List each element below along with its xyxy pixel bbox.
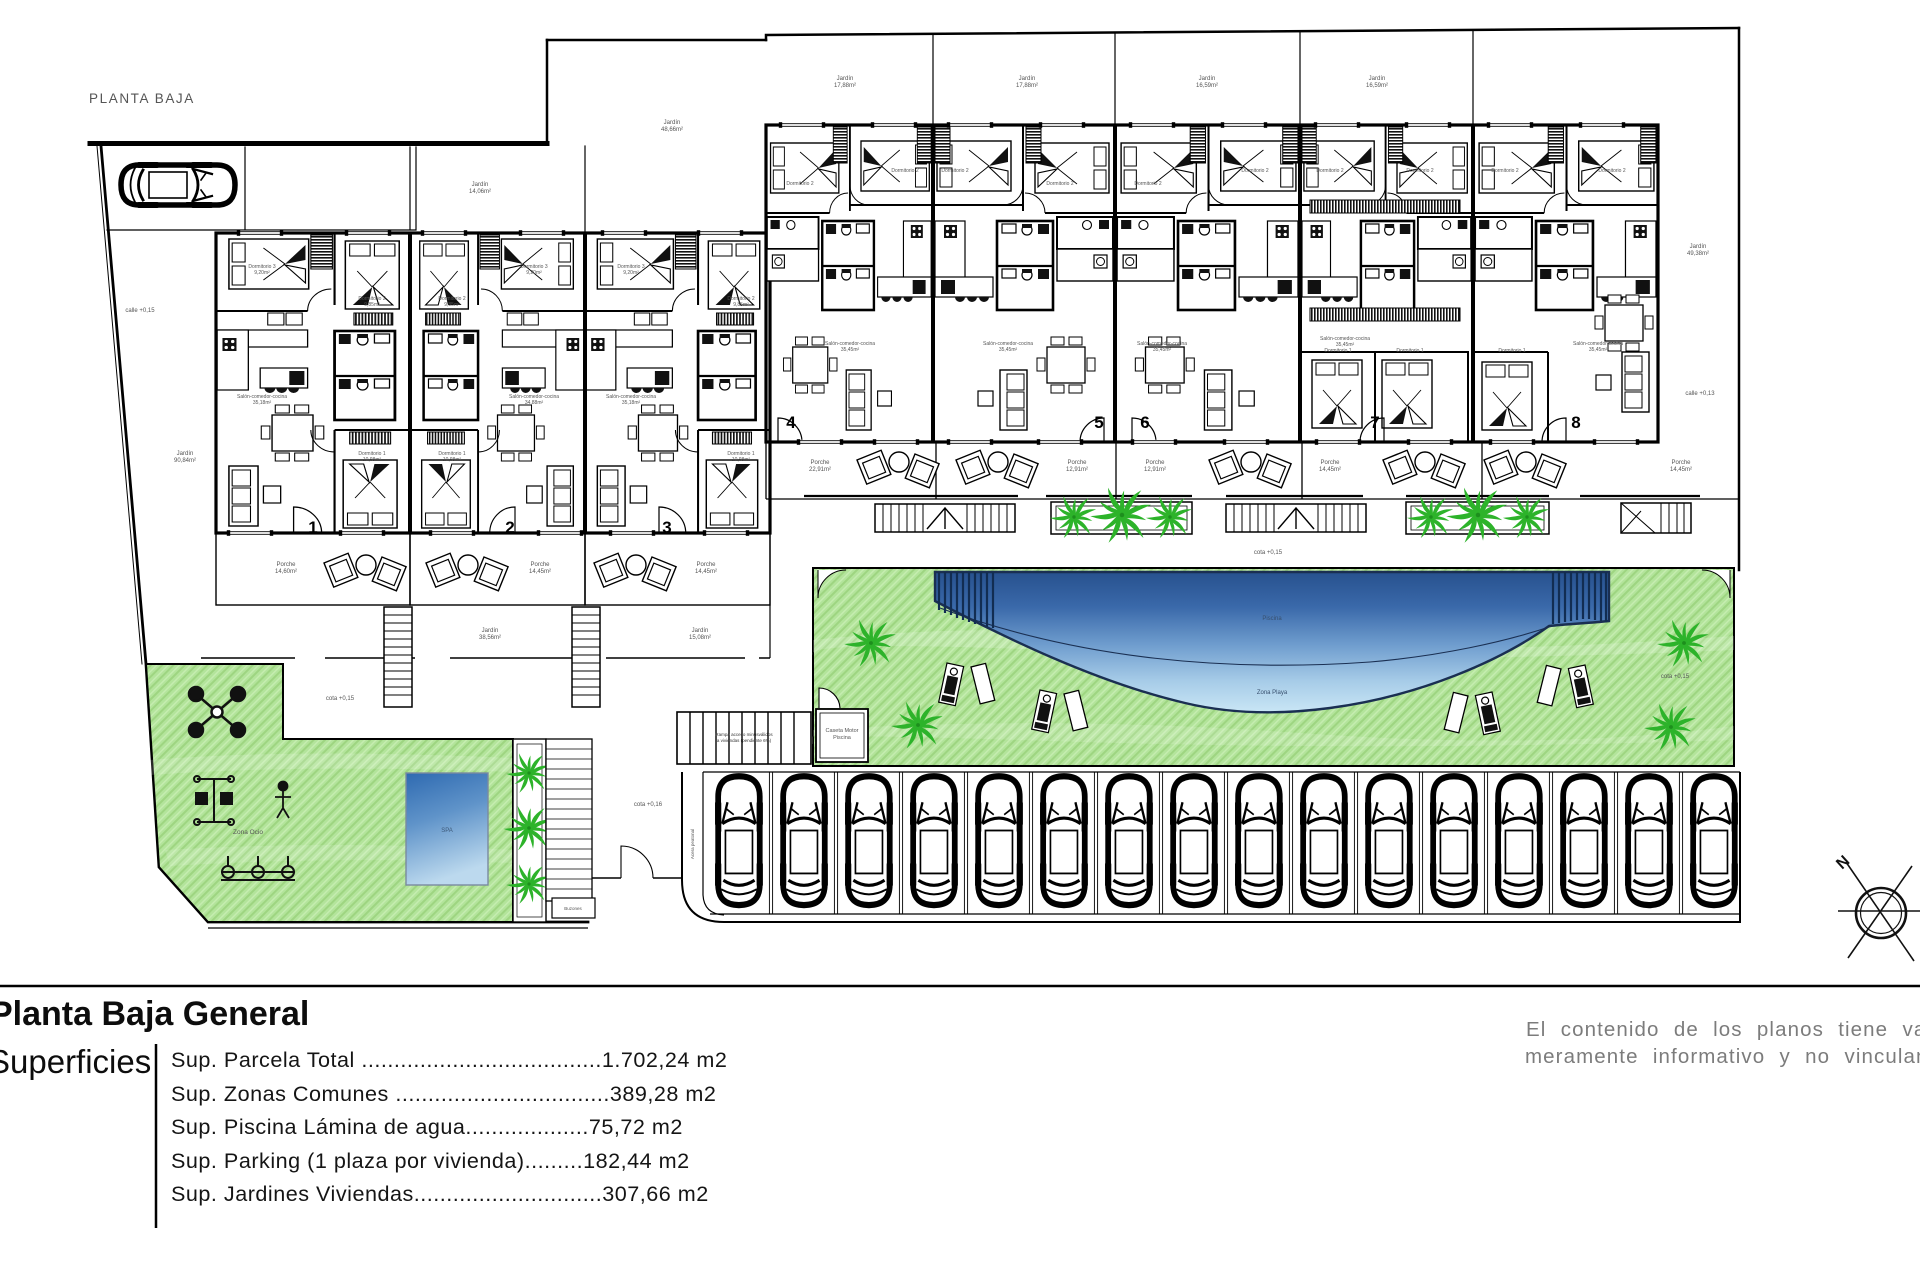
svg-text:14,45m²: 14,45m²	[695, 569, 717, 575]
svg-text:Caseta Motor: Caseta Motor	[825, 728, 858, 734]
svg-text:Piscina: Piscina	[833, 735, 852, 741]
svg-text:16,59m²: 16,59m²	[1366, 83, 1388, 89]
svg-text:4: 4	[786, 413, 796, 432]
svg-text:35,45m²: 35,45m²	[1589, 347, 1608, 353]
svg-text:9,20m²: 9,20m²	[254, 270, 270, 276]
svg-text:cota +0,15: cota +0,15	[1254, 550, 1283, 556]
svg-text:cota +0,15: cota +0,15	[1661, 674, 1690, 680]
svg-text:16,59m²: 16,59m²	[1196, 83, 1218, 89]
svg-text:Jardín: Jardín	[837, 76, 854, 82]
svg-text:9,20m²: 9,20m²	[526, 270, 542, 276]
svg-text:Dormitorio 2: Dormitorio 2	[1134, 181, 1161, 187]
svg-text:15,08m²: 15,08m²	[689, 635, 711, 641]
svg-text:Porche: Porche	[530, 562, 550, 568]
svg-text:El contenido de los planos tie: El contenido de los planos tiene valor	[1526, 1018, 1920, 1041]
svg-text:Porche: Porche	[1320, 460, 1340, 466]
svg-text:38,56m²: 38,56m²	[479, 635, 501, 641]
svg-text:14,45m²: 14,45m²	[529, 569, 551, 575]
svg-text:6: 6	[1140, 413, 1149, 432]
svg-text:10,98m²: 10,98m²	[443, 457, 462, 463]
svg-text:Piscina: Piscina	[1262, 616, 1282, 622]
svg-text:Porche: Porche	[1671, 460, 1691, 466]
svg-text:7: 7	[1370, 413, 1379, 432]
svg-text:Dormitorio 2: Dormitorio 2	[1491, 168, 1518, 174]
svg-text:meramente informativo y no vin: meramente informativo y no vinculante	[1525, 1045, 1920, 1068]
svg-text:35,45m²: 35,45m²	[841, 347, 860, 353]
svg-text:Dormitorio 2: Dormitorio 2	[891, 168, 918, 174]
svg-text:Porche: Porche	[1145, 460, 1165, 466]
svg-text:Superficies: Superficies	[0, 1043, 151, 1080]
svg-text:a viviendas (pendiente 6%): a viviendas (pendiente 6%)	[717, 738, 772, 743]
svg-text:Jardín: Jardín	[472, 182, 489, 188]
svg-text:Acera peatonal: Acera peatonal	[690, 829, 695, 859]
svg-text:cota +0,16: cota +0,16	[634, 802, 663, 808]
svg-text:49,38m²: 49,38m²	[1687, 251, 1709, 257]
svg-text:Jardín: Jardín	[1199, 76, 1216, 82]
svg-text:Buzones: Buzones	[564, 906, 582, 911]
svg-text:17,88m²: 17,88m²	[834, 83, 856, 89]
svg-text:Dormitorio 1: Dormitorio 1	[1324, 348, 1351, 354]
svg-text:Dormitorio 2: Dormitorio 2	[1598, 168, 1625, 174]
svg-text:Sup. Jardines Viviendas.......: Sup. Jardines Viviendas.................…	[171, 1181, 709, 1206]
svg-text:calle +0,13: calle +0,13	[1685, 391, 1715, 397]
svg-text:calle +0,15: calle +0,15	[125, 308, 155, 314]
svg-text:17,88m²: 17,88m²	[1016, 83, 1038, 89]
svg-text:SPA: SPA	[441, 828, 453, 834]
svg-text:Jardín: Jardín	[664, 120, 681, 126]
svg-text:Sup. Parcela Total ...........: Sup. Parcela Total .....................…	[171, 1047, 727, 1072]
svg-text:cota +0,15: cota +0,15	[326, 696, 355, 702]
svg-text:Dormitorio 2: Dormitorio 2	[1406, 168, 1433, 174]
svg-text:Sup. Zonas Comunes ...........: Sup. Zonas Comunes .....................…	[171, 1081, 716, 1106]
svg-text:Dormitorio 2: Dormitorio 2	[1241, 168, 1268, 174]
svg-text:9,85m²: 9,85m²	[733, 302, 749, 308]
svg-text:48,66m²: 48,66m²	[661, 127, 683, 133]
svg-text:Porche: Porche	[276, 562, 296, 568]
svg-text:Sup. Piscina Lámina de agua...: Sup. Piscina Lámina de agua.............…	[171, 1114, 683, 1139]
svg-text:34,88m²: 34,88m²	[525, 400, 544, 406]
svg-text:10,98m²: 10,98m²	[363, 457, 382, 463]
svg-text:9,85m²: 9,85m²	[364, 302, 380, 308]
svg-text:Dormitorio 2: Dormitorio 2	[941, 168, 968, 174]
svg-text:9,85m²: 9,85m²	[444, 302, 460, 308]
svg-text:Jardín: Jardín	[1690, 244, 1707, 250]
svg-text:Porche: Porche	[810, 460, 830, 466]
svg-text:12,91m²: 12,91m²	[1144, 467, 1166, 473]
svg-text:Sup. Parking (1 plaza por vivi: Sup. Parking (1 plaza por vivienda).....…	[171, 1148, 690, 1173]
svg-text:Jardín: Jardín	[1369, 76, 1386, 82]
svg-text:Dormitorio 1: Dormitorio 1	[1396, 348, 1423, 354]
svg-text:5: 5	[1094, 413, 1103, 432]
svg-text:35,18m²: 35,18m²	[622, 400, 641, 406]
svg-text:Jardín: Jardín	[177, 451, 194, 457]
svg-text:Porche: Porche	[1067, 460, 1087, 466]
svg-text:Rampa acceso minusválidos: Rampa acceso minusválidos	[715, 732, 773, 737]
svg-text:Zona Playa: Zona Playa	[1257, 690, 1288, 696]
svg-text:Porche: Porche	[696, 562, 716, 568]
svg-text:35,45m²: 35,45m²	[999, 347, 1018, 353]
svg-text:Planta Baja General: Planta Baja General	[0, 995, 309, 1033]
svg-text:10,98m²: 10,98m²	[732, 457, 751, 463]
svg-text:14,45m²: 14,45m²	[1319, 467, 1341, 473]
svg-text:14,45m²: 14,45m²	[1670, 467, 1692, 473]
svg-text:14,06m²: 14,06m²	[469, 189, 491, 195]
svg-text:8: 8	[1571, 413, 1580, 432]
svg-text:14,60m²: 14,60m²	[275, 569, 297, 575]
svg-text:Zona Ocio: Zona Ocio	[233, 829, 263, 836]
svg-text:3: 3	[662, 518, 671, 537]
svg-text:1: 1	[308, 518, 317, 537]
svg-text:9,20m²: 9,20m²	[623, 270, 639, 276]
svg-text:Jardín: Jardín	[1019, 76, 1036, 82]
svg-text:35,18m²: 35,18m²	[253, 400, 272, 406]
svg-text:90,84m²: 90,84m²	[174, 458, 196, 464]
svg-text:Dormitorio 2: Dormitorio 2	[1316, 168, 1343, 174]
svg-text:35,45m²: 35,45m²	[1153, 347, 1172, 353]
svg-text:12,91m²: 12,91m²	[1066, 467, 1088, 473]
svg-text:22,91m²: 22,91m²	[809, 467, 831, 473]
svg-text:2: 2	[505, 518, 514, 537]
svg-text:Jardín: Jardín	[482, 628, 499, 634]
svg-text:Dormitorio 2: Dormitorio 2	[1046, 181, 1073, 187]
svg-text:PLANTA BAJA: PLANTA BAJA	[89, 91, 195, 106]
svg-text:Dormitorio 2: Dormitorio 2	[786, 181, 813, 187]
svg-text:Jardín: Jardín	[692, 628, 709, 634]
svg-text:Dormitorio 1: Dormitorio 1	[1498, 348, 1525, 354]
